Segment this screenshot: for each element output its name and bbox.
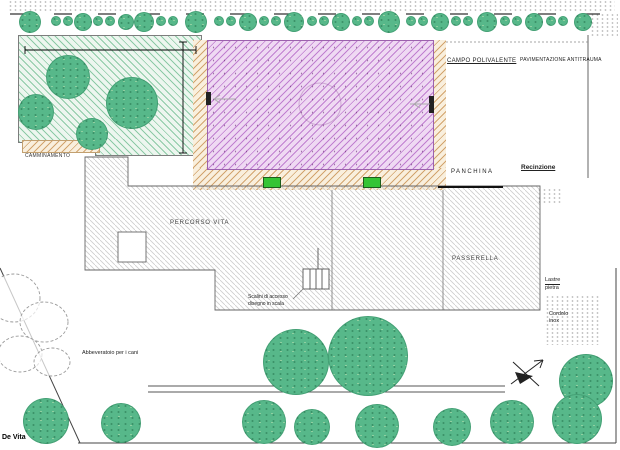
author-label: De Vita <box>2 434 26 442</box>
walkway-label: PASSERELLA <box>452 256 499 263</box>
field-centre-circle <box>299 83 341 125</box>
plan-linework <box>0 0 620 450</box>
dog-fountain-label: Abbeveratoio per i cani <box>82 350 138 356</box>
paving-label: PAVIMENTAZIONE ANTITRAUMA <box>520 58 602 64</box>
bench-2 <box>363 177 381 188</box>
field-arrows <box>214 95 430 108</box>
note-lower-line2: inox <box>549 318 568 325</box>
note-lower-line1: Cordolo <box>549 311 568 318</box>
existing-bushes-group <box>0 274 70 376</box>
field-label: CAMPO POLIVALENTE <box>447 58 516 65</box>
fence-label: Recinzione <box>521 164 555 171</box>
bench-label: PANCHINA <box>451 169 494 176</box>
north-arrow-icon <box>511 360 543 386</box>
note-upper-line2: pietra <box>545 285 560 292</box>
steps-note: Scalini di accesso disegno in scala <box>248 294 288 307</box>
site-plan: CAMPO POLIVALENTE PAVIMENTAZIONE ANTITRA… <box>0 0 620 450</box>
bench-1 <box>263 177 281 188</box>
trail-label: PERCORSO VITA <box>170 220 229 227</box>
bush <box>34 348 70 376</box>
goal-left <box>206 92 211 105</box>
steps-note-line2: disegno in scala <box>248 301 288 308</box>
path-label: CAMMINAMENTO <box>25 154 70 160</box>
dimension-lines <box>25 42 196 153</box>
steps-note-line1: Scalini di accesso <box>248 294 288 301</box>
lower-path-lines <box>148 386 505 392</box>
note-upper-line1: Lastre <box>545 277 560 285</box>
note-lower: Cordolo inox <box>549 311 568 325</box>
bush <box>20 302 68 342</box>
note-upper: Lastre pietra <box>545 277 560 292</box>
walkway-step-notch <box>118 232 146 262</box>
